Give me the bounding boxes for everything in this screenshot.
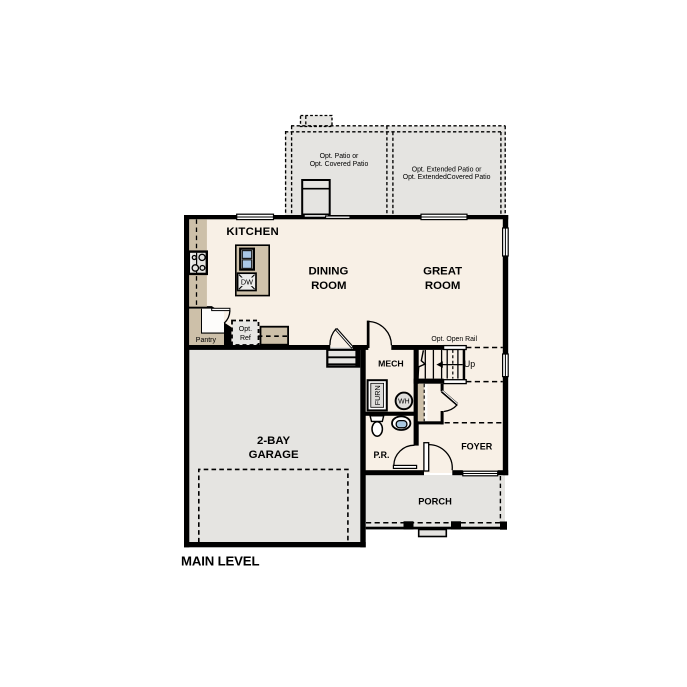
svg-text:WH: WH <box>398 398 410 405</box>
svg-text:Opt. Covered Patio: Opt. Covered Patio <box>310 161 369 168</box>
svg-text:2-BAY: 2-BAY <box>257 435 291 447</box>
svg-text:MECH: MECH <box>378 358 404 368</box>
svg-text:DW: DW <box>241 278 253 287</box>
svg-text:FOYER: FOYER <box>461 442 493 452</box>
svg-text:P.R.: P.R. <box>374 450 390 460</box>
svg-text:Ref: Ref <box>240 335 251 342</box>
svg-text:Opt. Open Rail: Opt. Open Rail <box>431 336 477 343</box>
svg-text:PORCH: PORCH <box>418 496 452 506</box>
svg-text:Opt. Extended Patio or: Opt. Extended Patio or <box>412 167 482 174</box>
svg-text:Opt. ExtendedCovered Patio: Opt. ExtendedCovered Patio <box>403 174 491 181</box>
svg-text:DINING: DINING <box>308 266 348 278</box>
svg-text:Opt.: Opt. <box>239 326 252 333</box>
svg-text:Up: Up <box>464 359 475 369</box>
svg-text:Opt. Patio or: Opt. Patio or <box>320 153 359 160</box>
svg-text:FURN: FURN <box>373 385 382 405</box>
svg-text:GARAGE: GARAGE <box>249 449 299 461</box>
svg-text:MAIN LEVEL: MAIN LEVEL <box>181 553 259 568</box>
svg-text:ROOM: ROOM <box>311 280 346 292</box>
svg-text:Pantry: Pantry <box>196 337 217 344</box>
svg-text:ROOM: ROOM <box>425 280 460 292</box>
svg-text:GREAT: GREAT <box>423 266 462 278</box>
svg-text:KITCHEN: KITCHEN <box>226 226 279 238</box>
